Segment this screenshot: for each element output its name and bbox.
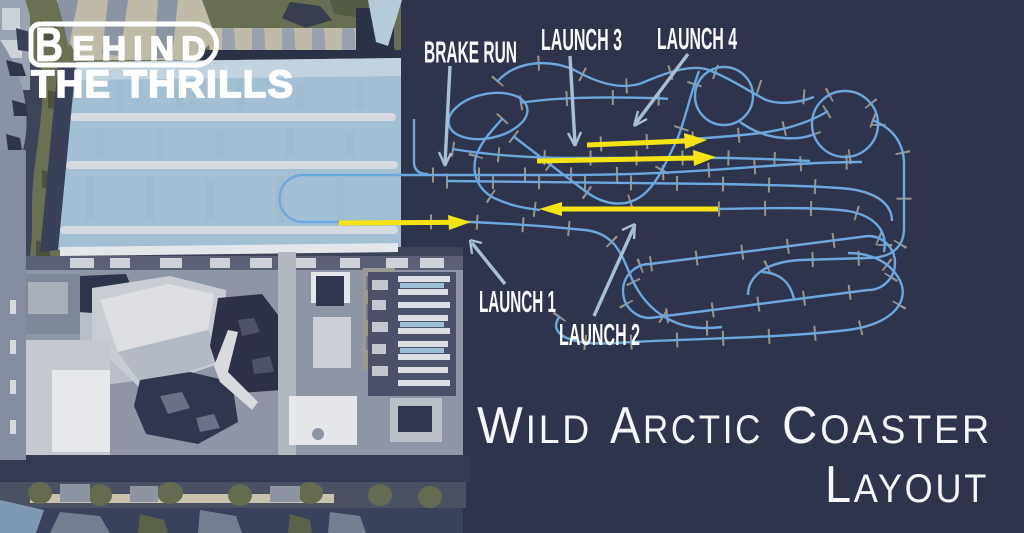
svg-text:LAUNCH 4: LAUNCH 4 [657,21,737,56]
svg-text:LAUNCH 3: LAUNCH 3 [541,22,622,57]
svg-text:LAUNCH 2: LAUNCH 2 [559,317,640,352]
svg-text:EHIND: EHIND [72,30,213,68]
svg-text:LAUNCH 1: LAUNCH 1 [479,284,556,319]
svg-text:BRAKE RUN: BRAKE RUN [424,35,517,70]
svg-text:THE THRILLS: THE THRILLS [31,64,294,106]
